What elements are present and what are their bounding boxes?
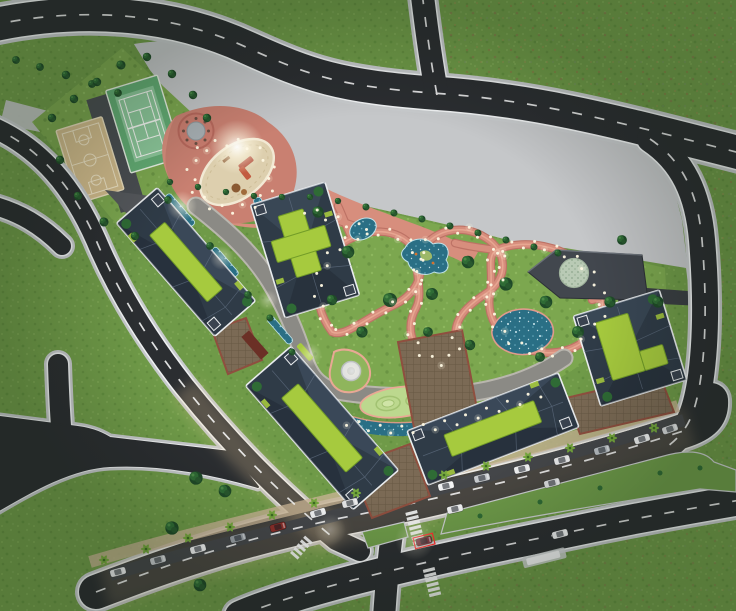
site-plan-rendering — [0, 0, 736, 611]
masterplan-canvas — [0, 0, 736, 611]
vignette — [0, 0, 736, 611]
